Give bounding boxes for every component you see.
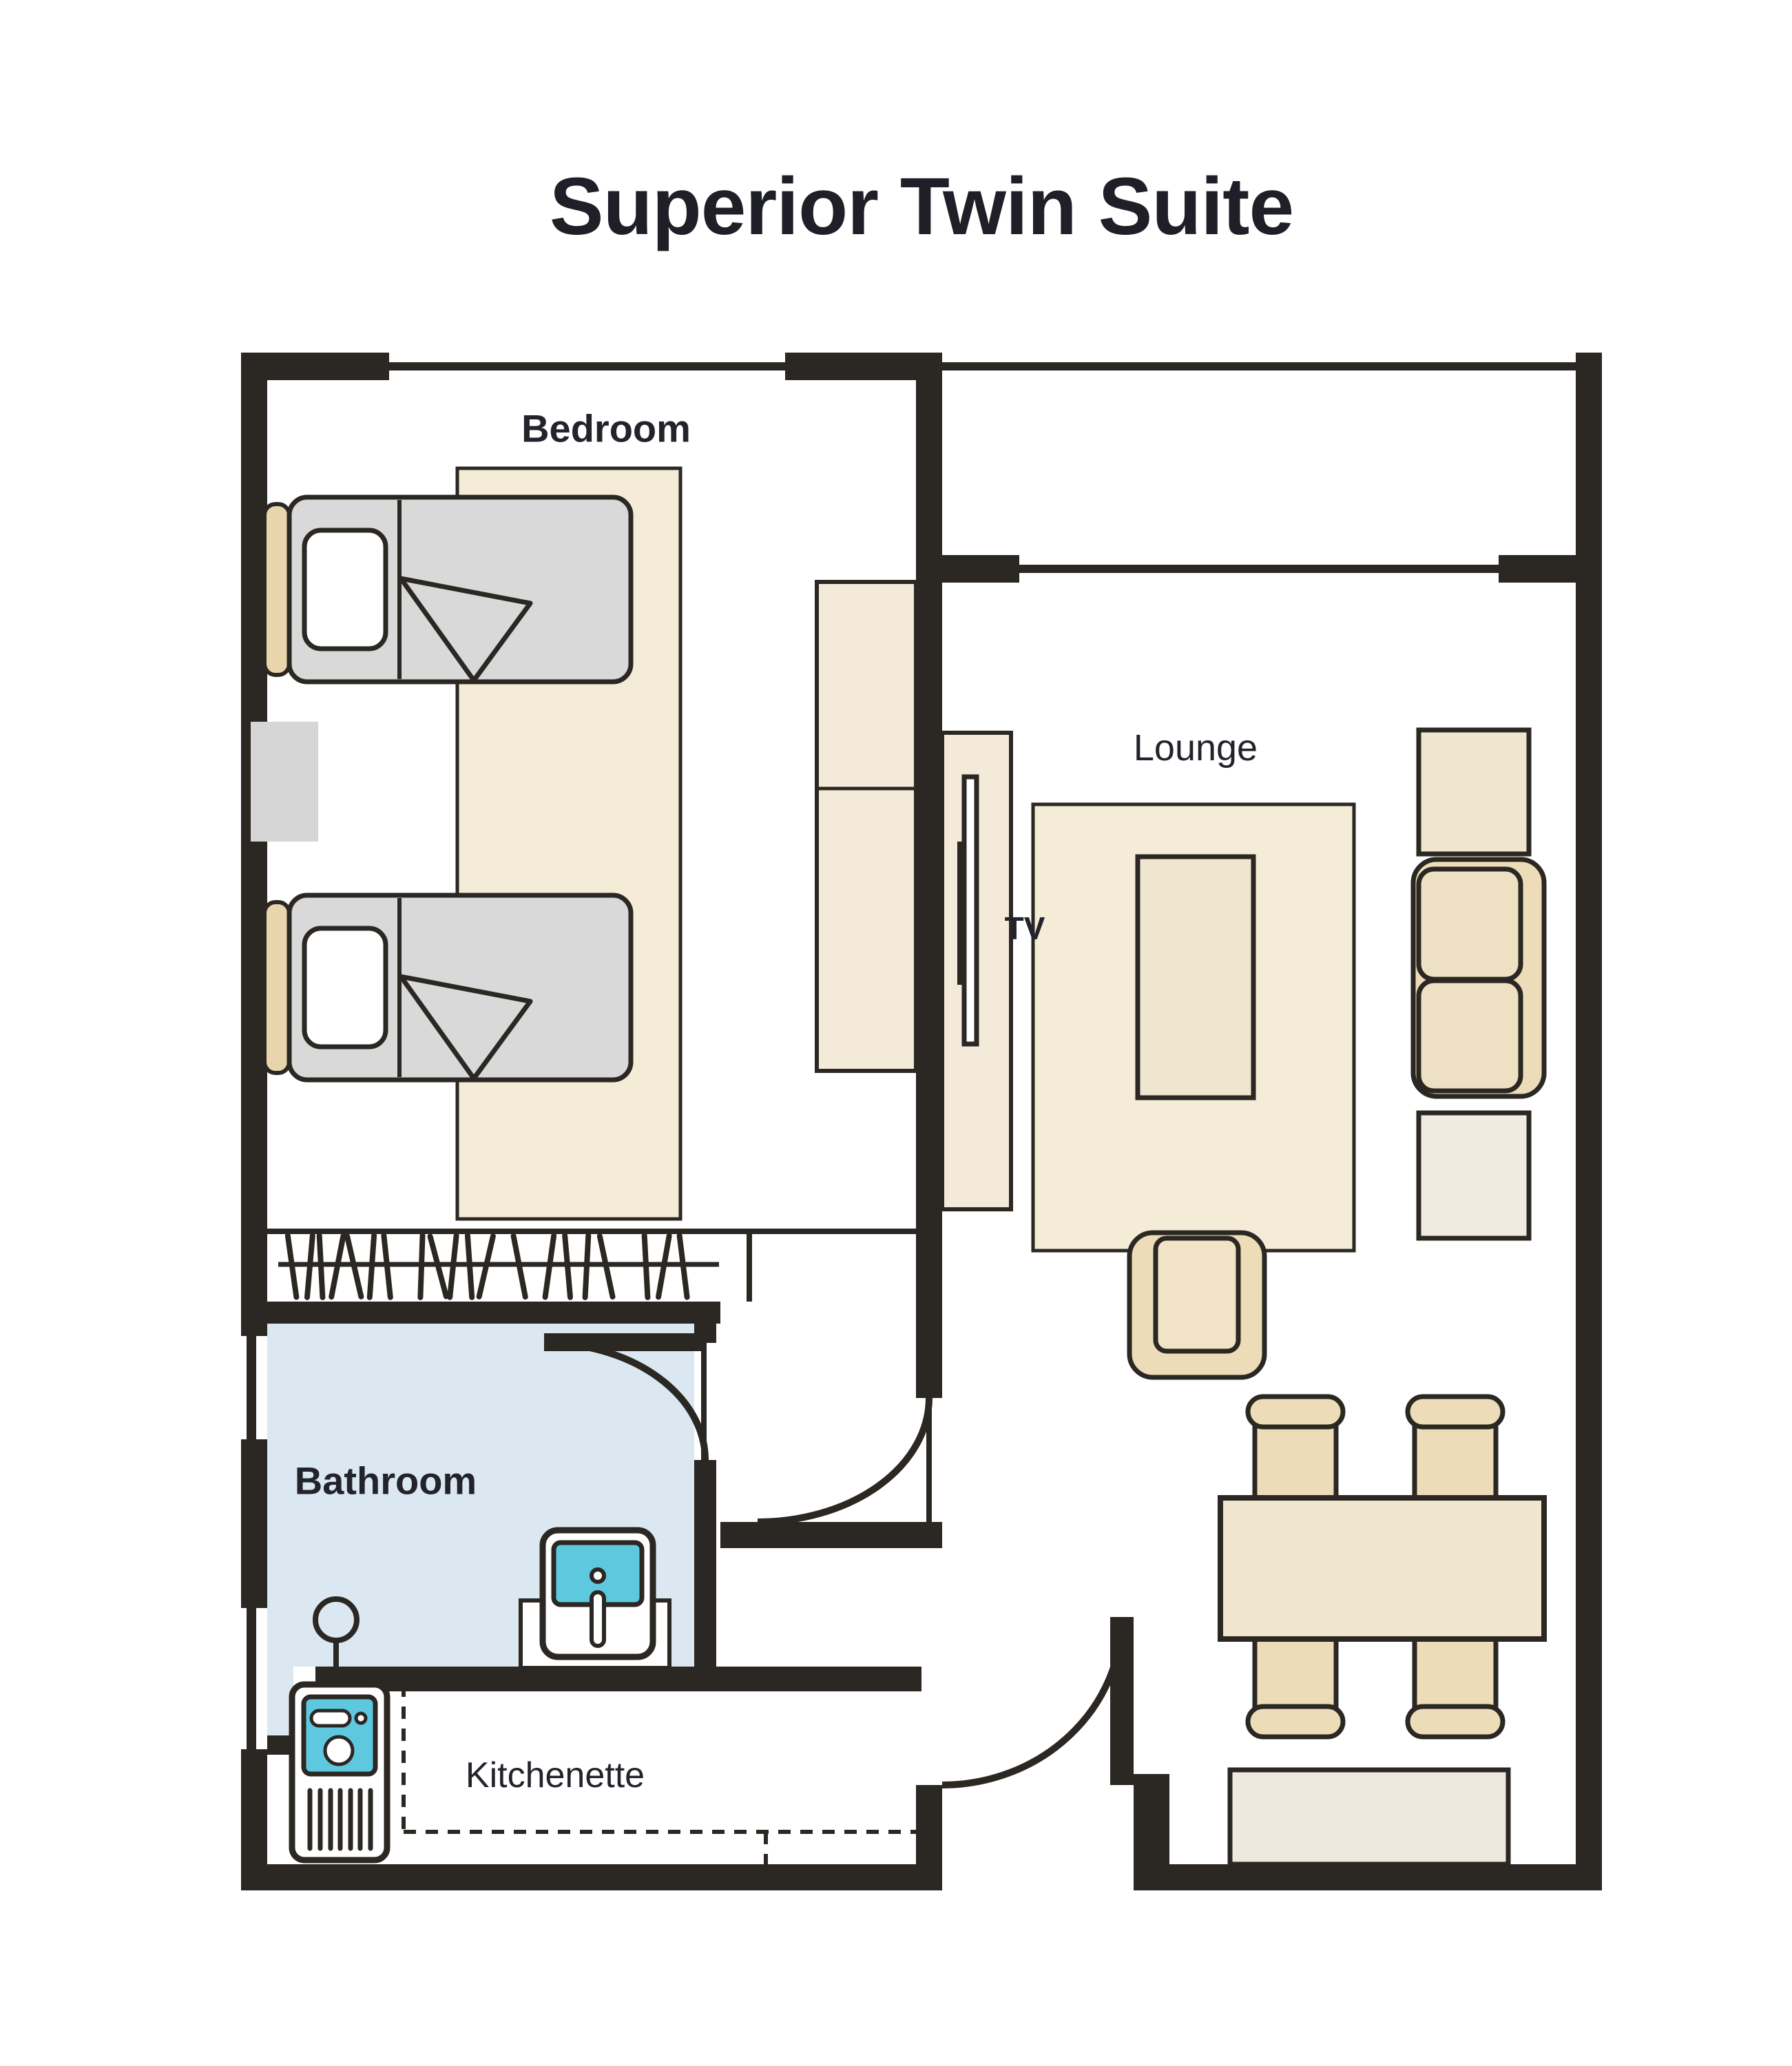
hallway-door — [758, 1398, 932, 1522]
kitchenette-window — [247, 1608, 256, 1749]
floorplan-page: Superior Twin Suite — [0, 0, 1792, 2066]
tv-label: TV — [1005, 910, 1045, 947]
burner-icon — [325, 1737, 353, 1764]
entrance-door — [942, 1617, 1134, 1785]
balcony-glass-line — [1019, 565, 1499, 573]
bathroom-window — [247, 1336, 256, 1439]
bedroom-window — [389, 362, 785, 371]
twin-bed-2 — [264, 895, 631, 1080]
door-swing-arc — [942, 1617, 1122, 1785]
bench — [1230, 1770, 1508, 1864]
sofa — [1413, 859, 1544, 1096]
dining-chair — [1408, 1397, 1503, 1512]
twin-bed-1 — [264, 497, 631, 682]
floorplan-drawing — [0, 0, 1792, 2066]
bathroom-sink — [521, 1530, 669, 1668]
tap-dot-icon — [592, 1569, 604, 1582]
dining-table — [1220, 1498, 1544, 1639]
tap-icon — [592, 1592, 604, 1646]
bedroom-dresser — [817, 582, 916, 1071]
side-table-top — [1419, 730, 1529, 854]
dining-chair — [1248, 1397, 1343, 1512]
side-table-bottom — [1419, 1113, 1529, 1238]
vent-lines-icon — [310, 1791, 371, 1848]
kitchenette-label: Kitchenette — [466, 1755, 645, 1796]
armchair — [1129, 1233, 1264, 1377]
bedroom-label: Bedroom — [521, 406, 691, 451]
closet — [267, 1229, 916, 1302]
coffee-table — [1138, 857, 1253, 1098]
door-swing-arc — [758, 1398, 929, 1522]
nightstand — [251, 722, 318, 842]
lounge-top-window — [942, 362, 1576, 371]
kitchen-unit — [292, 1684, 387, 1860]
bathroom-label: Bathroom — [295, 1459, 477, 1503]
lounge-label: Lounge — [1134, 727, 1258, 769]
